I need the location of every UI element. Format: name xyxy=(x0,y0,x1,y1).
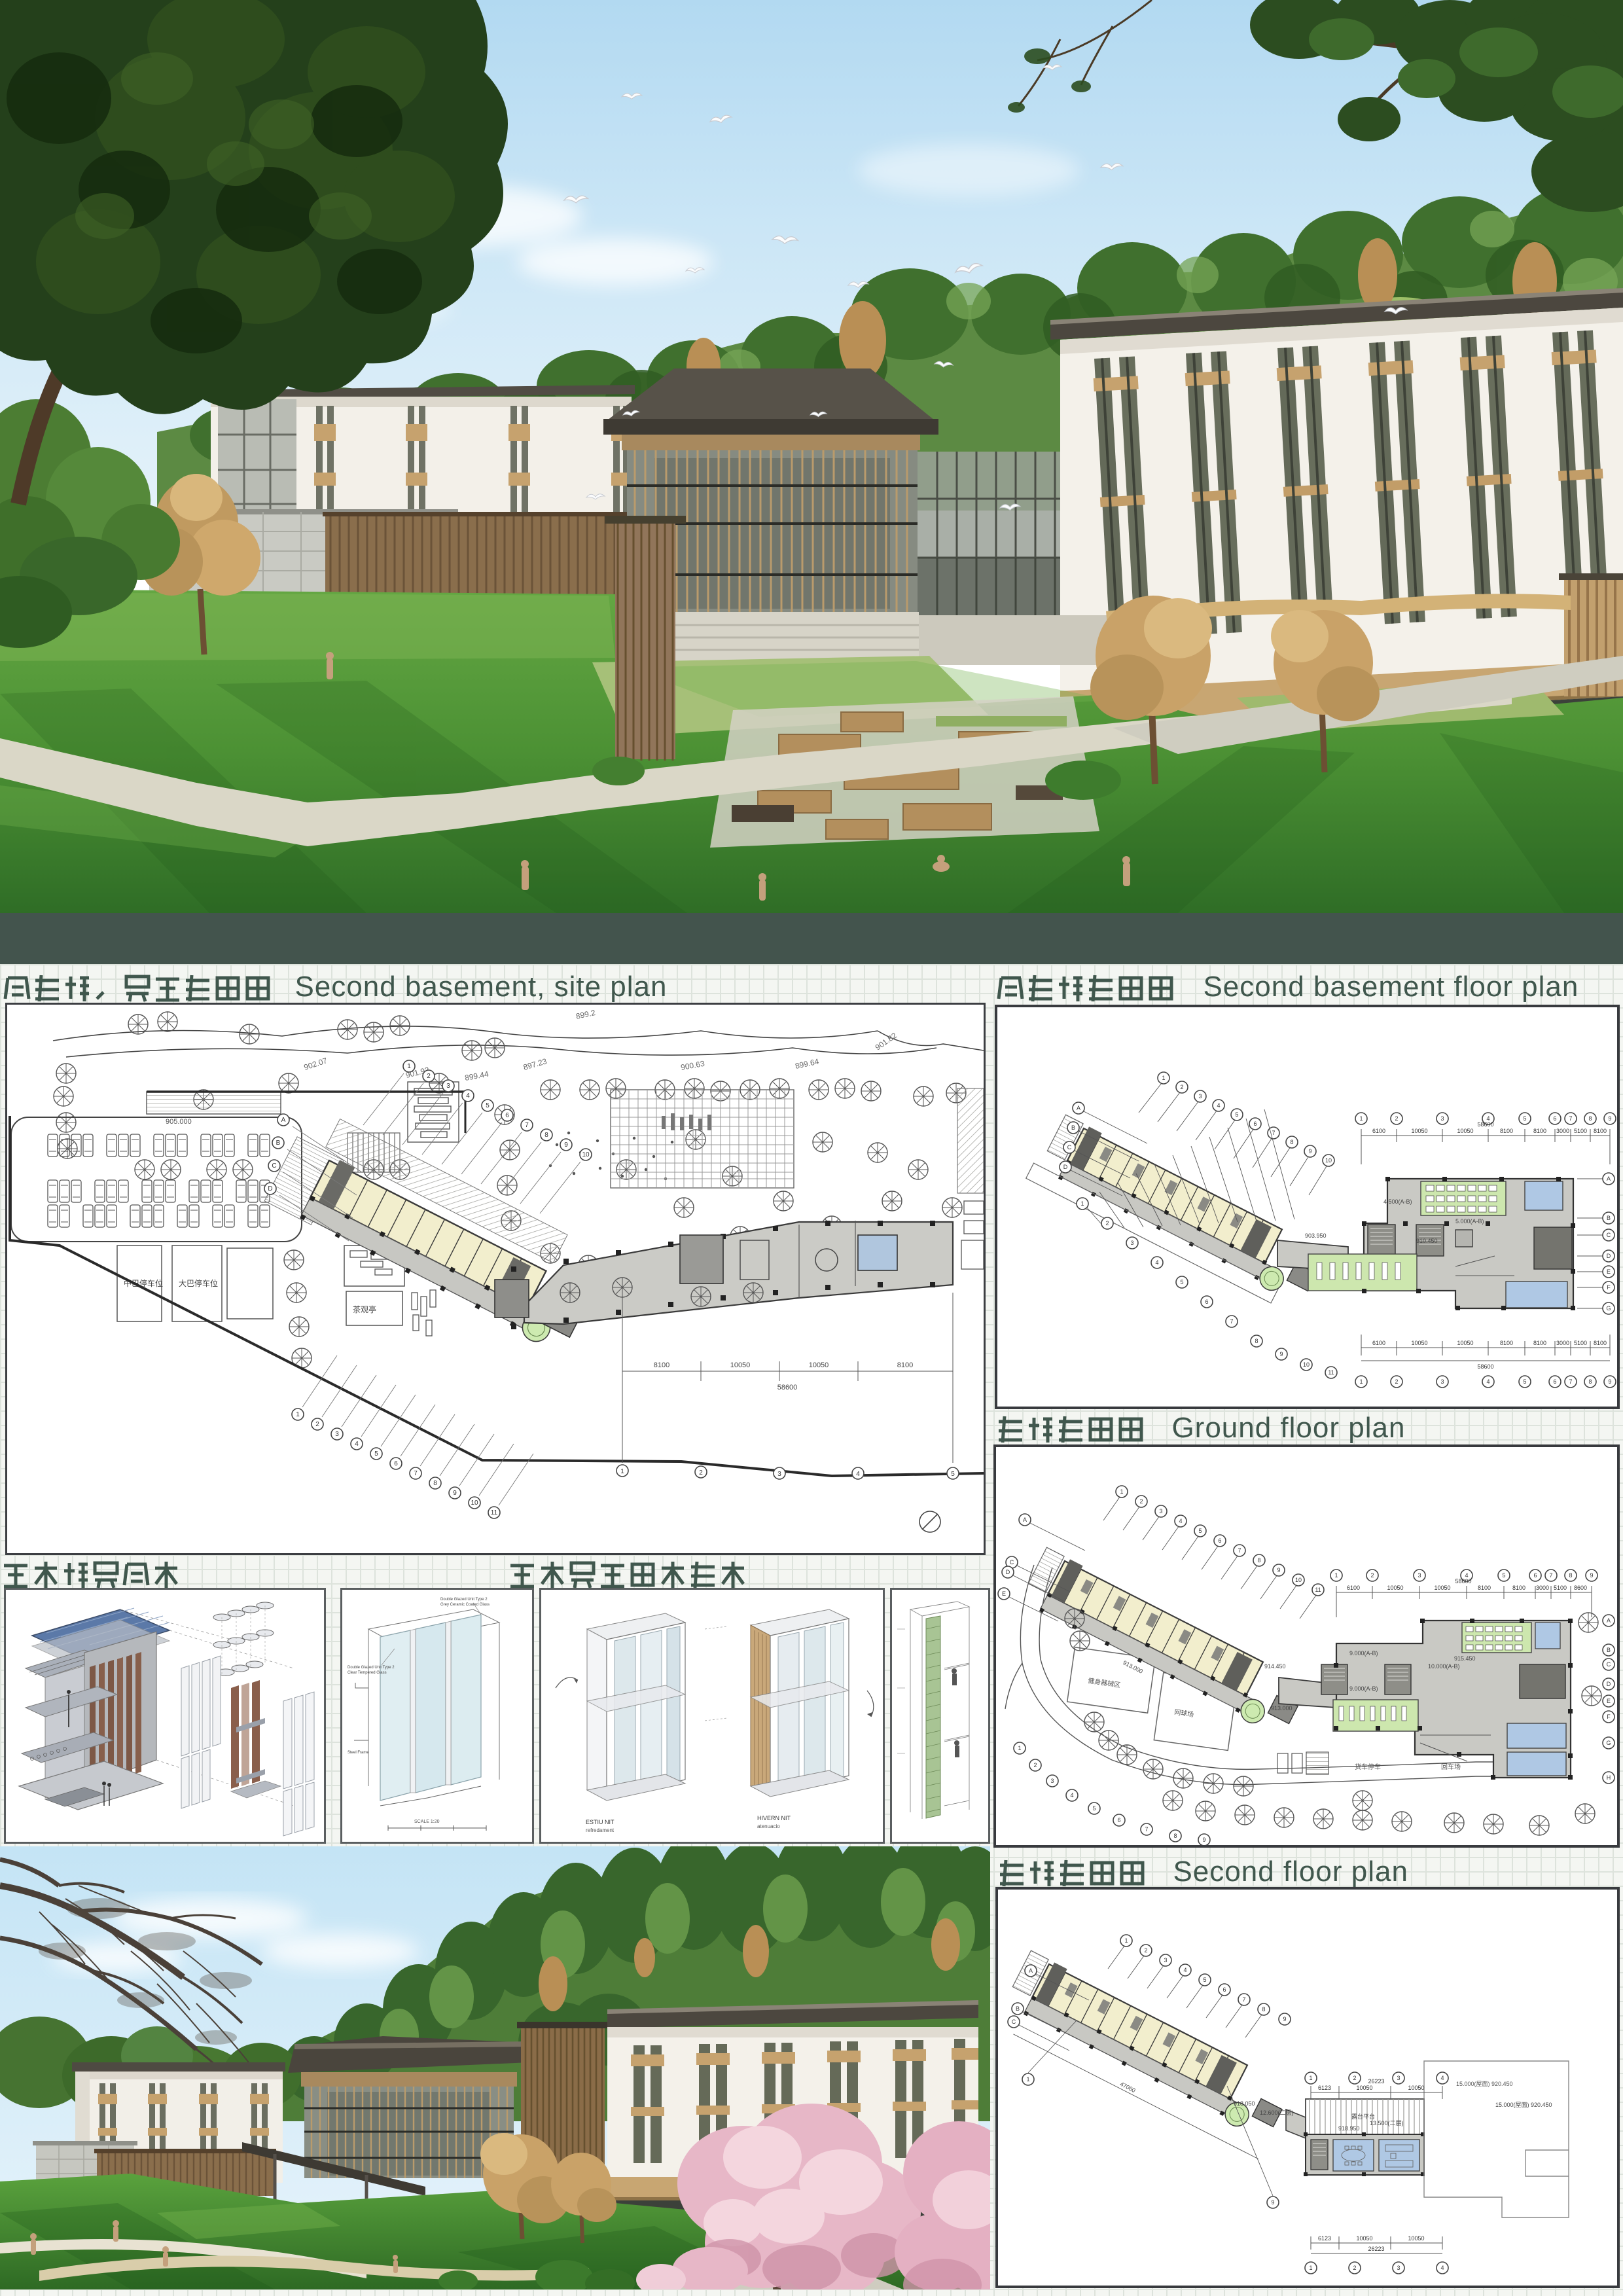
svg-text:2: 2 xyxy=(1353,2265,1356,2271)
svg-text:6: 6 xyxy=(1553,1115,1556,1122)
svg-text:5: 5 xyxy=(1180,1279,1183,1285)
svg-text:9: 9 xyxy=(1590,1572,1593,1579)
svg-text:9.000(A-B): 9.000(A-B) xyxy=(1349,1650,1378,1657)
svg-text:7: 7 xyxy=(1230,1318,1233,1325)
svg-text:5: 5 xyxy=(1198,1528,1202,1534)
svg-text:897.23: 897.23 xyxy=(522,1056,548,1072)
svg-text:8: 8 xyxy=(1255,1338,1258,1344)
svg-text:E: E xyxy=(1002,1590,1006,1597)
svg-text:货车停车: 货车停车 xyxy=(1355,1763,1381,1771)
svg-text:C: C xyxy=(1607,1661,1611,1668)
svg-text:10: 10 xyxy=(1303,1361,1310,1368)
svg-text:58600: 58600 xyxy=(1477,1363,1493,1370)
svg-text:Grey Ceramic Coated Glass: Grey Ceramic Coated Glass xyxy=(440,1603,490,1607)
svg-text:A: A xyxy=(1607,1175,1611,1182)
svg-text:9: 9 xyxy=(453,1490,457,1497)
svg-text:2: 2 xyxy=(427,1073,431,1080)
svg-text:47060: 47060 xyxy=(1119,2081,1137,2094)
svg-text:11: 11 xyxy=(1315,1587,1321,1593)
svg-text:1: 1 xyxy=(620,1468,624,1475)
svg-text:1: 1 xyxy=(1359,1115,1363,1122)
svg-text:1: 1 xyxy=(1359,1378,1363,1385)
svg-text:8: 8 xyxy=(1569,1572,1572,1579)
svg-text:8100: 8100 xyxy=(1594,1340,1607,1346)
svg-text:1: 1 xyxy=(1120,1488,1123,1495)
svg-text:8100: 8100 xyxy=(654,1361,669,1369)
svg-text:3: 3 xyxy=(1440,1115,1444,1122)
svg-text:918.950: 918.950 xyxy=(1338,2125,1360,2132)
svg-text:899.44: 899.44 xyxy=(464,1069,490,1083)
svg-text:C: C xyxy=(272,1162,276,1170)
svg-text:B: B xyxy=(1607,1647,1611,1653)
svg-text:2: 2 xyxy=(1370,1572,1374,1579)
svg-text:5: 5 xyxy=(1235,1111,1238,1118)
svg-text:5: 5 xyxy=(1502,1572,1505,1579)
svg-text:3: 3 xyxy=(1440,1378,1444,1385)
svg-text:3: 3 xyxy=(1159,1508,1162,1515)
svg-text:10: 10 xyxy=(1325,1157,1332,1164)
svg-text:7: 7 xyxy=(1569,1115,1572,1122)
svg-text:9.000(A-B): 9.000(A-B) xyxy=(1349,1685,1378,1692)
svg-text:A: A xyxy=(1029,1967,1033,1974)
svg-text:8: 8 xyxy=(1173,1833,1177,1839)
svg-text:10050: 10050 xyxy=(1387,1585,1403,1591)
svg-text:15.000(屋面) 920.450: 15.000(屋面) 920.450 xyxy=(1495,2102,1552,2108)
svg-text:9: 9 xyxy=(1277,1567,1280,1573)
svg-text:5: 5 xyxy=(1523,1378,1526,1385)
svg-text:3: 3 xyxy=(446,1083,450,1090)
svg-text:918.050: 918.050 xyxy=(1234,2100,1255,2107)
svg-text:G: G xyxy=(1606,1305,1611,1312)
svg-text:D: D xyxy=(1607,1681,1611,1687)
svg-text:C: C xyxy=(1010,1559,1014,1566)
svg-text:8: 8 xyxy=(1588,1378,1592,1385)
svg-text:3000: 3000 xyxy=(1556,1340,1569,1346)
svg-text:D: D xyxy=(268,1185,272,1193)
svg-text:8100: 8100 xyxy=(1533,1128,1546,1134)
svg-text:58600: 58600 xyxy=(1477,1121,1493,1128)
svg-text:露台平台: 露台平台 xyxy=(1351,2113,1375,2120)
svg-text:C: C xyxy=(1607,1232,1611,1238)
svg-text:9: 9 xyxy=(1202,1837,1205,1843)
svg-text:5: 5 xyxy=(951,1471,955,1478)
svg-text:5100: 5100 xyxy=(1574,1340,1587,1346)
svg-text:899.64: 899.64 xyxy=(794,1057,820,1071)
svg-text:10050: 10050 xyxy=(1408,2235,1424,2242)
svg-text:58600: 58600 xyxy=(777,1384,798,1391)
svg-text:refredament: refredament xyxy=(586,1827,615,1833)
svg-text:8: 8 xyxy=(1257,1557,1260,1564)
svg-text:8: 8 xyxy=(1588,1115,1592,1122)
svg-text:SCALE 1:20: SCALE 1:20 xyxy=(414,1820,440,1824)
svg-text:8600: 8600 xyxy=(1574,1585,1587,1591)
svg-text:902.07: 902.07 xyxy=(303,1056,329,1072)
svg-text:2: 2 xyxy=(1353,2075,1356,2081)
svg-text:9: 9 xyxy=(1308,1148,1311,1155)
svg-text:E: E xyxy=(1607,1698,1611,1704)
svg-text:B: B xyxy=(1607,1215,1611,1221)
svg-text:B: B xyxy=(1016,2005,1020,2012)
svg-text:C: C xyxy=(1067,1144,1072,1151)
svg-text:ESTIU NIT: ESTIU NIT xyxy=(586,1819,615,1825)
svg-text:8: 8 xyxy=(1262,2006,1265,2013)
svg-text:6: 6 xyxy=(505,1112,509,1119)
svg-text:11: 11 xyxy=(491,1509,498,1516)
svg-text:5.000(A-B): 5.000(A-B) xyxy=(1455,1218,1484,1225)
svg-text:2: 2 xyxy=(1139,1498,1143,1505)
svg-text:Double Glazed Unit Type 2: Double Glazed Unit Type 2 xyxy=(348,1666,395,1670)
svg-text:10050: 10050 xyxy=(730,1361,751,1369)
svg-text:915.450: 915.450 xyxy=(1454,1655,1476,1662)
svg-text:1: 1 xyxy=(1334,1572,1338,1579)
svg-text:5: 5 xyxy=(374,1450,378,1458)
svg-text:H: H xyxy=(1607,1774,1611,1781)
svg-text:2: 2 xyxy=(1144,1947,1147,1954)
svg-text:2: 2 xyxy=(699,1469,703,1477)
svg-text:3000: 3000 xyxy=(1556,1128,1569,1134)
svg-text:5: 5 xyxy=(486,1102,490,1109)
svg-text:3: 3 xyxy=(335,1431,339,1438)
svg-text:8100: 8100 xyxy=(1500,1128,1513,1134)
svg-text:4: 4 xyxy=(355,1441,359,1448)
svg-text:F: F xyxy=(1607,1284,1611,1291)
svg-text:4: 4 xyxy=(1440,2075,1444,2081)
svg-text:914.450: 914.450 xyxy=(1264,1663,1286,1670)
svg-text:4: 4 xyxy=(1440,2265,1444,2271)
svg-text:B: B xyxy=(276,1139,281,1147)
svg-text:8100: 8100 xyxy=(1594,1128,1607,1134)
svg-text:10050: 10050 xyxy=(1457,1340,1473,1346)
svg-text:3: 3 xyxy=(1397,2265,1400,2271)
svg-text:8100: 8100 xyxy=(1500,1340,1513,1346)
svg-text:6100: 6100 xyxy=(1372,1128,1385,1134)
svg-text:1: 1 xyxy=(1018,1745,1021,1751)
svg-text:2: 2 xyxy=(1033,1762,1037,1768)
svg-text:26223: 26223 xyxy=(1368,2246,1384,2252)
svg-text:901.82: 901.82 xyxy=(874,1031,899,1052)
svg-text:8100: 8100 xyxy=(1512,1585,1525,1591)
svg-text:D: D xyxy=(1063,1164,1068,1170)
svg-text:6123: 6123 xyxy=(1318,2085,1331,2091)
svg-text:D: D xyxy=(1006,1569,1010,1575)
svg-text:8100: 8100 xyxy=(1533,1340,1546,1346)
svg-text:4: 4 xyxy=(466,1092,470,1100)
svg-text:3: 3 xyxy=(777,1471,781,1478)
svg-text:A: A xyxy=(1607,1617,1611,1624)
svg-text:7: 7 xyxy=(1238,1547,1241,1554)
svg-text:4: 4 xyxy=(1155,1259,1158,1266)
svg-text:7: 7 xyxy=(414,1470,418,1477)
svg-text:3: 3 xyxy=(1130,1240,1133,1246)
svg-text:5: 5 xyxy=(1092,1805,1096,1812)
svg-text:910.450: 910.450 xyxy=(1416,1238,1438,1244)
svg-text:3: 3 xyxy=(1397,2075,1400,2081)
svg-text:10050: 10050 xyxy=(1411,1128,1427,1134)
svg-text:6: 6 xyxy=(1253,1121,1257,1127)
svg-text:2: 2 xyxy=(315,1421,319,1428)
svg-text:2: 2 xyxy=(1395,1378,1398,1385)
svg-text:4: 4 xyxy=(1183,1967,1186,1973)
svg-text:1: 1 xyxy=(407,1063,411,1070)
svg-text:10: 10 xyxy=(471,1499,478,1507)
svg-text:1: 1 xyxy=(1080,1200,1084,1207)
svg-text:9: 9 xyxy=(1608,1378,1611,1385)
svg-text:1: 1 xyxy=(296,1411,300,1418)
svg-text:10.000(A-B): 10.000(A-B) xyxy=(1428,1663,1460,1670)
svg-text:4: 4 xyxy=(1217,1102,1220,1109)
svg-text:10: 10 xyxy=(1295,1577,1302,1583)
svg-text:1: 1 xyxy=(1309,2075,1312,2081)
svg-text:26223: 26223 xyxy=(1368,2078,1384,2085)
svg-text:4: 4 xyxy=(856,1471,860,1478)
svg-text:E: E xyxy=(1607,1268,1611,1275)
svg-text:4: 4 xyxy=(1070,1792,1073,1799)
svg-text:6: 6 xyxy=(394,1460,398,1467)
svg-text:A: A xyxy=(1023,1516,1027,1523)
svg-text:8: 8 xyxy=(544,1132,548,1139)
svg-text:10050: 10050 xyxy=(1411,1340,1427,1346)
svg-text:3: 3 xyxy=(1050,1778,1054,1784)
svg-text:6: 6 xyxy=(1205,1299,1208,1305)
svg-text:5100: 5100 xyxy=(1574,1128,1587,1134)
svg-text:6: 6 xyxy=(1533,1572,1537,1579)
svg-text:大巴停车位: 大巴停车位 xyxy=(179,1278,218,1288)
svg-text:900.63: 900.63 xyxy=(680,1059,705,1072)
svg-text:F: F xyxy=(1607,1713,1611,1720)
svg-text:3000: 3000 xyxy=(1536,1585,1549,1591)
svg-text:5: 5 xyxy=(1203,1977,1206,1983)
svg-text:3: 3 xyxy=(1164,1957,1167,1964)
svg-text:12.600(二层): 12.600(二层) xyxy=(1260,2109,1294,2116)
svg-text:HIVERN NIT: HIVERN NIT xyxy=(757,1815,791,1821)
svg-text:10050: 10050 xyxy=(1457,1128,1473,1134)
svg-text:8100: 8100 xyxy=(1478,1585,1491,1591)
svg-text:15.000(屋面) 920.450: 15.000(屋面) 920.450 xyxy=(1456,2081,1513,2087)
svg-text:7: 7 xyxy=(1549,1572,1552,1579)
svg-text:58600: 58600 xyxy=(1455,1578,1471,1585)
svg-text:健身器械区: 健身器械区 xyxy=(1088,1676,1121,1689)
svg-text:B: B xyxy=(1071,1124,1075,1131)
svg-text:11: 11 xyxy=(1328,1369,1334,1376)
svg-text:6123: 6123 xyxy=(1318,2235,1331,2242)
svg-text:A: A xyxy=(281,1117,286,1124)
svg-text:1: 1 xyxy=(1309,2265,1312,2271)
svg-text:3: 3 xyxy=(1418,1572,1421,1579)
svg-text:茶观亭: 茶观亭 xyxy=(353,1304,376,1314)
svg-text:1: 1 xyxy=(1162,1075,1165,1081)
svg-text:4.500(A-B): 4.500(A-B) xyxy=(1383,1198,1412,1205)
svg-text:4: 4 xyxy=(1486,1378,1489,1385)
svg-text:1: 1 xyxy=(1026,2076,1029,2083)
svg-text:6: 6 xyxy=(1553,1378,1556,1385)
svg-text:C: C xyxy=(1012,2018,1016,2025)
svg-text:7: 7 xyxy=(1569,1378,1572,1385)
svg-text:9: 9 xyxy=(1608,1115,1611,1122)
svg-text:5100: 5100 xyxy=(1554,1585,1567,1591)
svg-text:6100: 6100 xyxy=(1347,1585,1360,1591)
svg-text:9: 9 xyxy=(1283,2016,1286,2022)
svg-text:905.000: 905.000 xyxy=(166,1118,192,1126)
svg-text:Double Glazed Unit Type 2: Double Glazed Unit Type 2 xyxy=(440,1598,488,1602)
svg-text:10: 10 xyxy=(582,1151,590,1158)
svg-text:2: 2 xyxy=(1105,1220,1109,1227)
svg-text:6100: 6100 xyxy=(1372,1340,1385,1346)
svg-text:9: 9 xyxy=(1271,2199,1274,2206)
svg-text:899.2: 899.2 xyxy=(575,1008,597,1021)
svg-text:D: D xyxy=(1607,1253,1611,1259)
svg-text:2: 2 xyxy=(1395,1115,1398,1122)
svg-text:A: A xyxy=(1077,1105,1080,1111)
svg-text:7: 7 xyxy=(1145,1826,1148,1833)
svg-text:1: 1 xyxy=(1124,1937,1128,1944)
svg-text:6: 6 xyxy=(1117,1817,1120,1823)
svg-text:Steel Frame: Steel Frame xyxy=(348,1751,369,1755)
svg-text:10050: 10050 xyxy=(1434,1585,1450,1591)
svg-text:网球场: 网球场 xyxy=(1174,1708,1195,1719)
svg-text:7: 7 xyxy=(525,1122,529,1129)
svg-text:8: 8 xyxy=(433,1480,437,1487)
svg-text:G: G xyxy=(1606,1740,1611,1746)
svg-text:10050: 10050 xyxy=(1408,2085,1424,2091)
svg-text:Clear Tempered Glass: Clear Tempered Glass xyxy=(348,1671,387,1675)
svg-text:9: 9 xyxy=(1279,1351,1283,1357)
svg-text:6: 6 xyxy=(1218,1537,1221,1544)
svg-text:回车场: 回车场 xyxy=(1441,1763,1461,1771)
svg-text:10050: 10050 xyxy=(1356,2085,1372,2091)
svg-text:2: 2 xyxy=(1180,1084,1183,1090)
svg-text:5: 5 xyxy=(1523,1115,1526,1122)
svg-text:4: 4 xyxy=(1179,1518,1182,1524)
svg-text:10050: 10050 xyxy=(809,1361,829,1369)
svg-text:913.000: 913.000 xyxy=(1271,1705,1293,1712)
svg-text:atenuacio: atenuacio xyxy=(757,1823,780,1829)
svg-text:13.500(二层): 13.500(二层) xyxy=(1370,2120,1404,2126)
svg-text:7: 7 xyxy=(1272,1130,1275,1136)
svg-text:7: 7 xyxy=(1242,1996,1245,2003)
svg-text:8100: 8100 xyxy=(897,1361,913,1369)
svg-text:6: 6 xyxy=(1222,1986,1226,1993)
svg-text:3: 3 xyxy=(1198,1093,1202,1100)
svg-text:903.950: 903.950 xyxy=(1305,1232,1327,1239)
svg-text:9: 9 xyxy=(564,1141,568,1149)
svg-text:8: 8 xyxy=(1290,1139,1293,1145)
svg-text:10050: 10050 xyxy=(1356,2235,1372,2242)
